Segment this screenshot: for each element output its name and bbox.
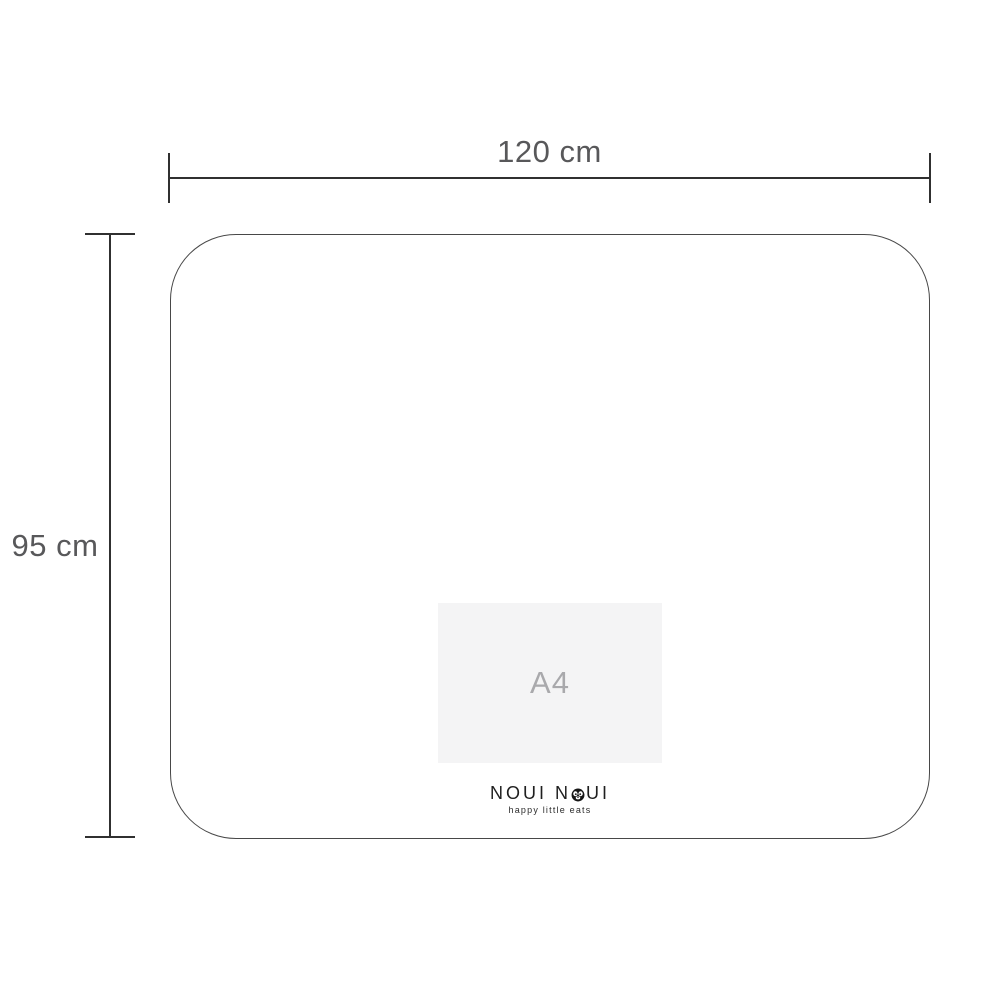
brand-name-suffix: UI bbox=[586, 783, 610, 803]
width-dimension-cap-right bbox=[929, 153, 931, 203]
brand-name: NOUI N UI bbox=[425, 783, 675, 803]
brand-tagline: happy little eats bbox=[425, 805, 675, 815]
height-dimension-rule bbox=[109, 233, 111, 838]
height-dimension-line bbox=[85, 233, 135, 838]
brand-logo: NOUI N UI happy little eats bbox=[425, 783, 675, 815]
panda-o-icon bbox=[571, 786, 585, 800]
width-dimension-line bbox=[168, 153, 931, 203]
width-dimension-rule bbox=[168, 177, 931, 179]
brand-name-prefix: NOUI N bbox=[490, 783, 571, 803]
a4-label: A4 bbox=[530, 665, 570, 701]
a4-reference-box: A4 bbox=[438, 603, 662, 763]
height-dimension-cap-bottom bbox=[85, 836, 135, 838]
page-canvas: 120 cm 95 cm A4 NOUI N bbox=[0, 0, 1000, 1000]
